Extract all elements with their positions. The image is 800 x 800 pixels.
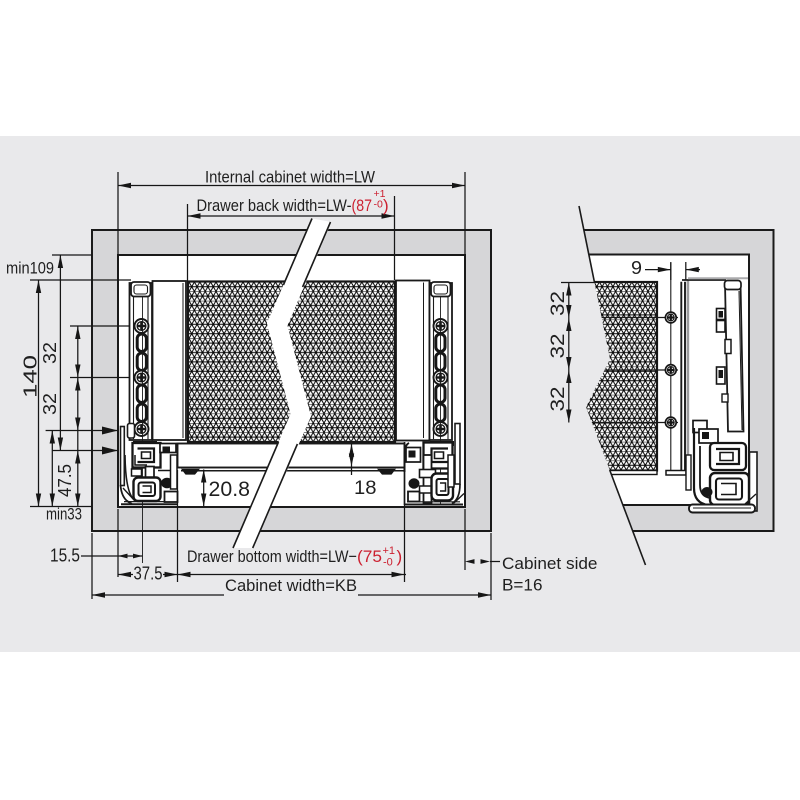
- svg-text:37.5: 37.5: [134, 564, 163, 584]
- svg-text:-0: -0: [383, 557, 393, 569]
- svg-text:Internal cabinet width=LW: Internal cabinet width=LW: [205, 168, 375, 187]
- svg-text:min33: min33: [46, 505, 82, 524]
- svg-text:): ): [383, 196, 389, 215]
- svg-text:140: 140: [21, 355, 41, 398]
- svg-text:Drawer bottom width=LW−: Drawer bottom width=LW−: [187, 547, 357, 566]
- svg-text:min109: min109: [6, 259, 54, 278]
- svg-text:-0: -0: [374, 199, 383, 211]
- svg-text:18: 18: [354, 477, 377, 499]
- svg-text:Cabinet width=KB: Cabinet width=KB: [225, 576, 357, 595]
- svg-text:Cabinet side: Cabinet side: [502, 554, 598, 573]
- svg-text:20.8: 20.8: [209, 477, 251, 501]
- svg-text:32: 32: [548, 387, 569, 412]
- svg-text:): ): [397, 547, 403, 566]
- svg-text:+1: +1: [383, 545, 396, 557]
- svg-text:47.5: 47.5: [55, 464, 75, 497]
- svg-text:32: 32: [40, 393, 60, 415]
- svg-text:B=16: B=16: [502, 576, 543, 595]
- svg-text:15.5: 15.5: [50, 546, 80, 566]
- svg-text:32: 32: [548, 291, 569, 316]
- svg-text:(87: (87: [352, 196, 373, 215]
- svg-text:32: 32: [40, 342, 60, 364]
- svg-text:(75: (75: [357, 547, 382, 566]
- svg-text:Drawer back width=LW-: Drawer back width=LW-: [197, 196, 352, 215]
- svg-text:9: 9: [631, 258, 642, 278]
- svg-text:32: 32: [548, 334, 569, 359]
